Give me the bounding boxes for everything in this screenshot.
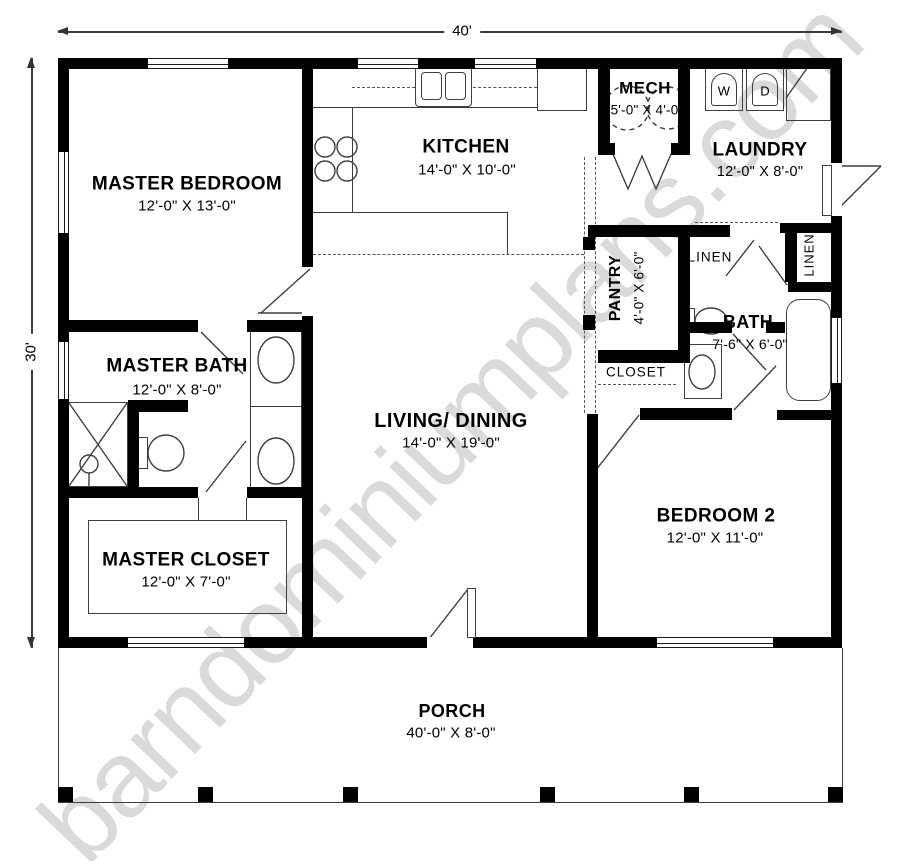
room-label-linen-hall: LINEN bbox=[688, 250, 733, 264]
bath-vanity-sink bbox=[689, 355, 715, 389]
cooktop-burner bbox=[315, 161, 335, 181]
wall-master-bedroom-bottom bbox=[69, 320, 198, 332]
wall-bath-bottom bbox=[777, 410, 832, 420]
room-dims-living-dining: 14'-0" X 19'-0" bbox=[402, 436, 500, 451]
wall-master-closet-top bbox=[247, 487, 302, 498]
master-vanity-sink bbox=[258, 438, 294, 484]
room-label-bath: BATH bbox=[723, 313, 773, 331]
room-label-laundry: LAUNDRY bbox=[713, 141, 808, 160]
cooktop-burner bbox=[337, 137, 357, 157]
room-dims-bedroom-2: 12'-0" X 11'-0" bbox=[667, 531, 764, 546]
room-dims-master-bedroom: 12'-0" X 13'-0" bbox=[138, 199, 236, 214]
wall-masterbath-living bbox=[302, 316, 313, 648]
room-label-mech: MECH bbox=[619, 80, 671, 97]
room-dims-laundry: 12'-0" X 8'-0" bbox=[717, 165, 803, 180]
room-label-linen-right: LINEN bbox=[803, 233, 816, 276]
master-vanity-sink bbox=[258, 337, 294, 383]
window bbox=[58, 152, 69, 233]
room-dims-bath: 7'-6" X 6'-0" bbox=[712, 337, 787, 351]
window bbox=[657, 637, 773, 648]
cooktop-burner bbox=[337, 161, 357, 181]
room-label-master-bath: MASTER BATH bbox=[106, 357, 247, 376]
room-dims-kitchen: 14'-0" X 10'-0" bbox=[418, 163, 516, 178]
overall-width-dimension: 40' bbox=[444, 24, 480, 39]
room-label-porch: PORCH bbox=[418, 702, 485, 720]
room-dims-master-bath: 12'-0" X 8'-0" bbox=[132, 383, 221, 398]
door-swing-front-door bbox=[429, 589, 468, 639]
wall-linen-left bbox=[785, 223, 797, 282]
window bbox=[358, 58, 418, 69]
window bbox=[148, 58, 228, 69]
back-door-leaf bbox=[822, 165, 832, 216]
bifold-door-mech bbox=[613, 154, 671, 189]
wall-bedroom2-divider bbox=[587, 414, 598, 648]
front-door-leaf bbox=[467, 588, 476, 638]
room-label-pantry: PANTRY bbox=[608, 255, 624, 321]
overall-depth-dimension: 30' bbox=[24, 334, 39, 370]
window bbox=[58, 342, 69, 399]
wall-pantry-top bbox=[588, 225, 730, 237]
floor-plan: barndominiumplans.com bbox=[0, 0, 900, 861]
dryer-letter: D bbox=[760, 85, 770, 98]
laundry-counter-edge bbox=[786, 64, 810, 98]
wall-linen-bottom bbox=[788, 282, 831, 292]
washer-letter: W bbox=[718, 85, 730, 98]
wall-shower-divider bbox=[128, 400, 139, 487]
wall-master-bedroom-right bbox=[302, 69, 313, 267]
wall-mech-bottom bbox=[598, 143, 615, 155]
door-swing-master-closet bbox=[206, 441, 246, 492]
room-dims-porch: 40'-0" X 8'-0" bbox=[406, 726, 495, 741]
wall-pantry-left-stub bbox=[583, 237, 595, 250]
wall-pantry-left-stub bbox=[583, 315, 595, 330]
room-label-master-bedroom: MASTER BEDROOM bbox=[92, 175, 282, 194]
front-door-opening bbox=[427, 637, 473, 648]
back-door-opening bbox=[831, 163, 842, 216]
wall-mech-left bbox=[598, 69, 610, 143]
window bbox=[128, 637, 244, 648]
window bbox=[475, 58, 536, 69]
room-label-kitchen: KITCHEN bbox=[422, 138, 509, 157]
door-swing-linen-right bbox=[759, 246, 787, 285]
wall-pantry-bottom bbox=[598, 350, 680, 363]
room-dims-pantry: 4'-0" X 6'-0" bbox=[632, 252, 646, 325]
wall-master-closet-top bbox=[69, 487, 198, 498]
room-dims-master-closet: 12'-0" X 7'-0" bbox=[141, 575, 230, 590]
door-swing-bedroom2 bbox=[734, 366, 776, 410]
door-swing-master-bedroom bbox=[261, 269, 310, 313]
room-dims-mech: 5'-0" X 4'-0" bbox=[611, 103, 684, 117]
room-label-closet: CLOSET bbox=[606, 365, 666, 379]
window bbox=[831, 318, 842, 383]
room-label-master-closet: MASTER CLOSET bbox=[102, 551, 270, 570]
door-swing-bedroom2-closet bbox=[596, 415, 639, 470]
wall-bedroom2-closet-bottom bbox=[640, 408, 732, 420]
room-label-living-dining: LIVING/ DINING bbox=[374, 411, 527, 431]
room-label-bedroom-2: BEDROOM 2 bbox=[657, 507, 776, 526]
cooktop-burner bbox=[315, 137, 335, 157]
master-toilet-bowl bbox=[148, 435, 184, 471]
